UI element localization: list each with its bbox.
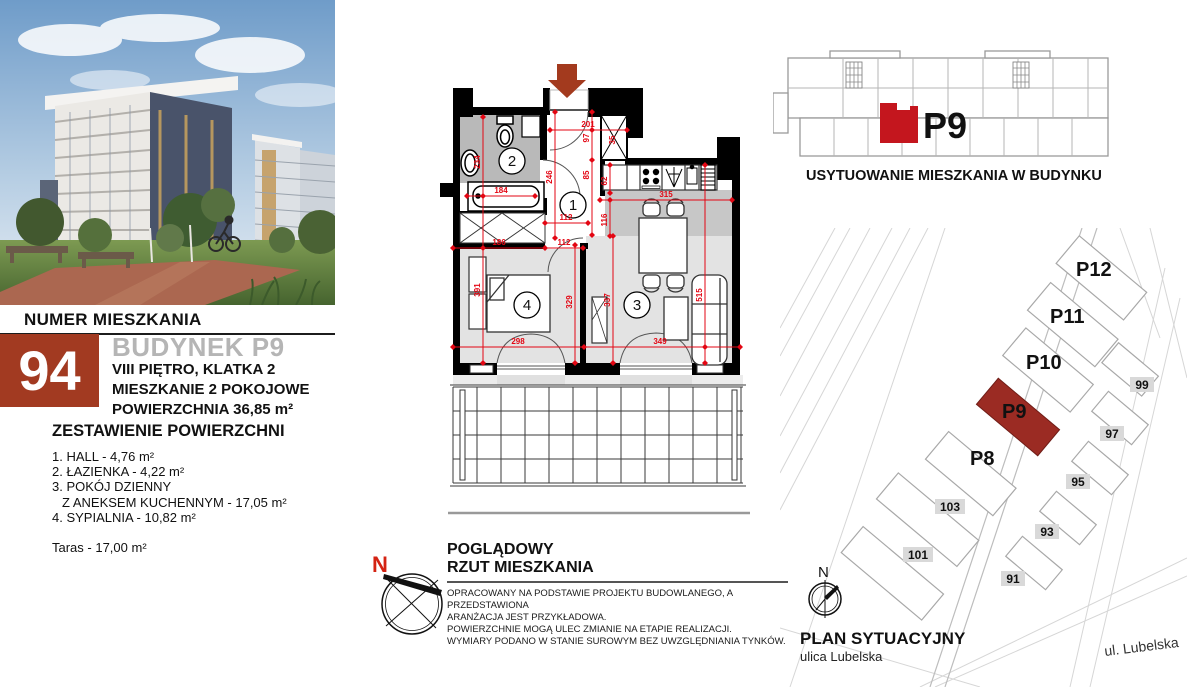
area-line: POWIERZCHNIA 36,85 m² xyxy=(112,400,310,420)
area-item-bedroom: 4. SYPIALNIA - 10,82 m² xyxy=(52,510,322,525)
site-plan-caption: PLAN SYTUACYJNY xyxy=(800,629,966,648)
area-item-hall: 1. HALL - 4,76 m² xyxy=(52,449,322,464)
room-number-living: 3 xyxy=(633,297,641,314)
site-label-p8: P8 xyxy=(970,448,994,470)
area-breakdown: ZESTAWIENIE POWIERZCHNI 1. HALL - 4,76 m… xyxy=(52,422,322,525)
dim-246: 246 xyxy=(545,170,554,184)
floor-plan: 1 2 3 4 xyxy=(440,50,770,520)
dim-298: 298 xyxy=(511,337,525,346)
dim-116: 116 xyxy=(600,213,609,226)
site-label-95: 95 xyxy=(1071,475,1085,489)
area-item-bathroom: 2. ŁAZIENKA - 4,22 m² xyxy=(52,464,322,479)
entrance-arrow-icon xyxy=(548,64,586,98)
site-compass: N xyxy=(809,564,841,618)
estate-photo xyxy=(0,0,335,305)
site-street-label-2: ul. Lubelska xyxy=(1103,634,1179,659)
dim-62: 62 xyxy=(600,176,609,185)
locator-building-label: P9 xyxy=(923,105,967,146)
site-street-label: ulica Lubelska xyxy=(800,649,883,664)
legend-note-4: WYMIARY PODANO W STANIE SUROWYM BEZ UWZG… xyxy=(447,636,792,648)
site-label-99: 99 xyxy=(1135,378,1149,392)
site-label-p9: P9 xyxy=(1002,401,1026,423)
fridge-icon xyxy=(701,165,715,190)
area-item-livingroom: 3. POKÓJ DZIENNY xyxy=(52,479,322,494)
site-label-101: 101 xyxy=(908,548,928,562)
site-label-p11: P11 xyxy=(1050,306,1084,328)
dim-329: 329 xyxy=(565,295,574,309)
site-label-91: 91 xyxy=(1006,572,1020,586)
site-plan: P12 P11 P10 P9 P8 99 97 95 93 91 103 101 xyxy=(780,228,1187,687)
dim-337: 337 xyxy=(603,293,612,307)
plan-compass: N xyxy=(368,552,452,648)
toilet-icon xyxy=(497,116,513,147)
dim-85: 85 xyxy=(582,170,591,179)
dim-315: 315 xyxy=(659,190,673,199)
dim-349: 349 xyxy=(653,337,667,346)
sink-icon xyxy=(687,165,697,184)
site-compass-north-label: N xyxy=(818,564,829,581)
dim-184: 184 xyxy=(494,186,508,195)
room-number-bed: 4 xyxy=(523,297,531,314)
legend-note-3: POWIERZCHNIE MOGĄ ULEC ZMIANIE NA ETAPIE… xyxy=(447,624,792,636)
room-number-bath: 2 xyxy=(508,153,516,170)
unit-number-header-label: NUMER MIESZKANIA xyxy=(0,306,335,333)
unit-summary: 94 BUDYNEK P9 VIII PIĘTRO, KLATKA 2 MIES… xyxy=(0,334,335,420)
site-label-p10: P10 xyxy=(1026,352,1062,374)
dim-391: 391 xyxy=(473,283,482,297)
dim-234: 234 xyxy=(473,155,482,169)
apartment-card-page: NUMER MIESZKANIA 94 BUDYNEK P9 VIII PIĘT… xyxy=(0,0,1187,687)
area-item-livingroom-cont: Z ANEKSEM KUCHENNYM - 17,05 m² xyxy=(52,495,322,510)
site-label-93: 93 xyxy=(1040,525,1054,539)
dim-186: 186 xyxy=(492,238,506,247)
type-line: MIESZKANIE 2 POKOJOWE xyxy=(112,380,310,400)
unit-number-badge: 94 xyxy=(0,334,99,407)
building-locator: P9 xyxy=(773,38,1118,166)
unit-number-header: NUMER MIESZKANIA xyxy=(0,306,335,335)
dim-515: 515 xyxy=(695,288,704,302)
dim-201: 201 xyxy=(581,120,595,129)
room-number-hall: 1 xyxy=(569,197,577,214)
unit-info: BUDYNEK P9 VIII PIĘTRO, KLATKA 2 MIESZKA… xyxy=(112,334,310,420)
locator-caption: USYTUOWANIE MIESZKANIA W BUDYNKU xyxy=(806,168,1102,184)
bathroom-cabinet-icon xyxy=(522,116,540,137)
area-breakdown-title: ZESTAWIENIE POWIERZCHNI xyxy=(52,422,322,441)
tv-cabinet-icon xyxy=(664,297,688,340)
legend-note-2: ARANŻACJA JEST PRZYKŁADOWA. xyxy=(447,612,792,624)
legend-note-1: OPRACOWANY NA PODSTAWIE PROJEKTU BUDOWLA… xyxy=(447,588,792,612)
dim-112a: 112 xyxy=(560,213,573,222)
dim-35: 35 xyxy=(608,135,617,144)
legend-rule xyxy=(447,581,788,583)
site-label-97: 97 xyxy=(1105,427,1119,441)
floor-line: VIII PIĘTRO, KLATKA 2 xyxy=(112,360,310,380)
dim-112b: 112 xyxy=(558,238,571,247)
terrace xyxy=(448,375,750,513)
plan-legend: POGLĄDOWY RZUT MIESZKANIA OPRACOWANY NA … xyxy=(447,541,792,649)
building-title: BUDYNEK P9 xyxy=(112,334,310,360)
terrace-area: Taras - 17,00 m² xyxy=(52,540,147,555)
compass-north-label: N xyxy=(372,552,388,577)
site-label-103: 103 xyxy=(940,500,960,514)
legend-title-2: RZUT MIESZKANIA xyxy=(447,559,792,577)
legend-title-1: POGLĄDOWY xyxy=(447,541,792,559)
dim-97: 97 xyxy=(582,133,591,142)
site-label-p12: P12 xyxy=(1076,259,1112,281)
